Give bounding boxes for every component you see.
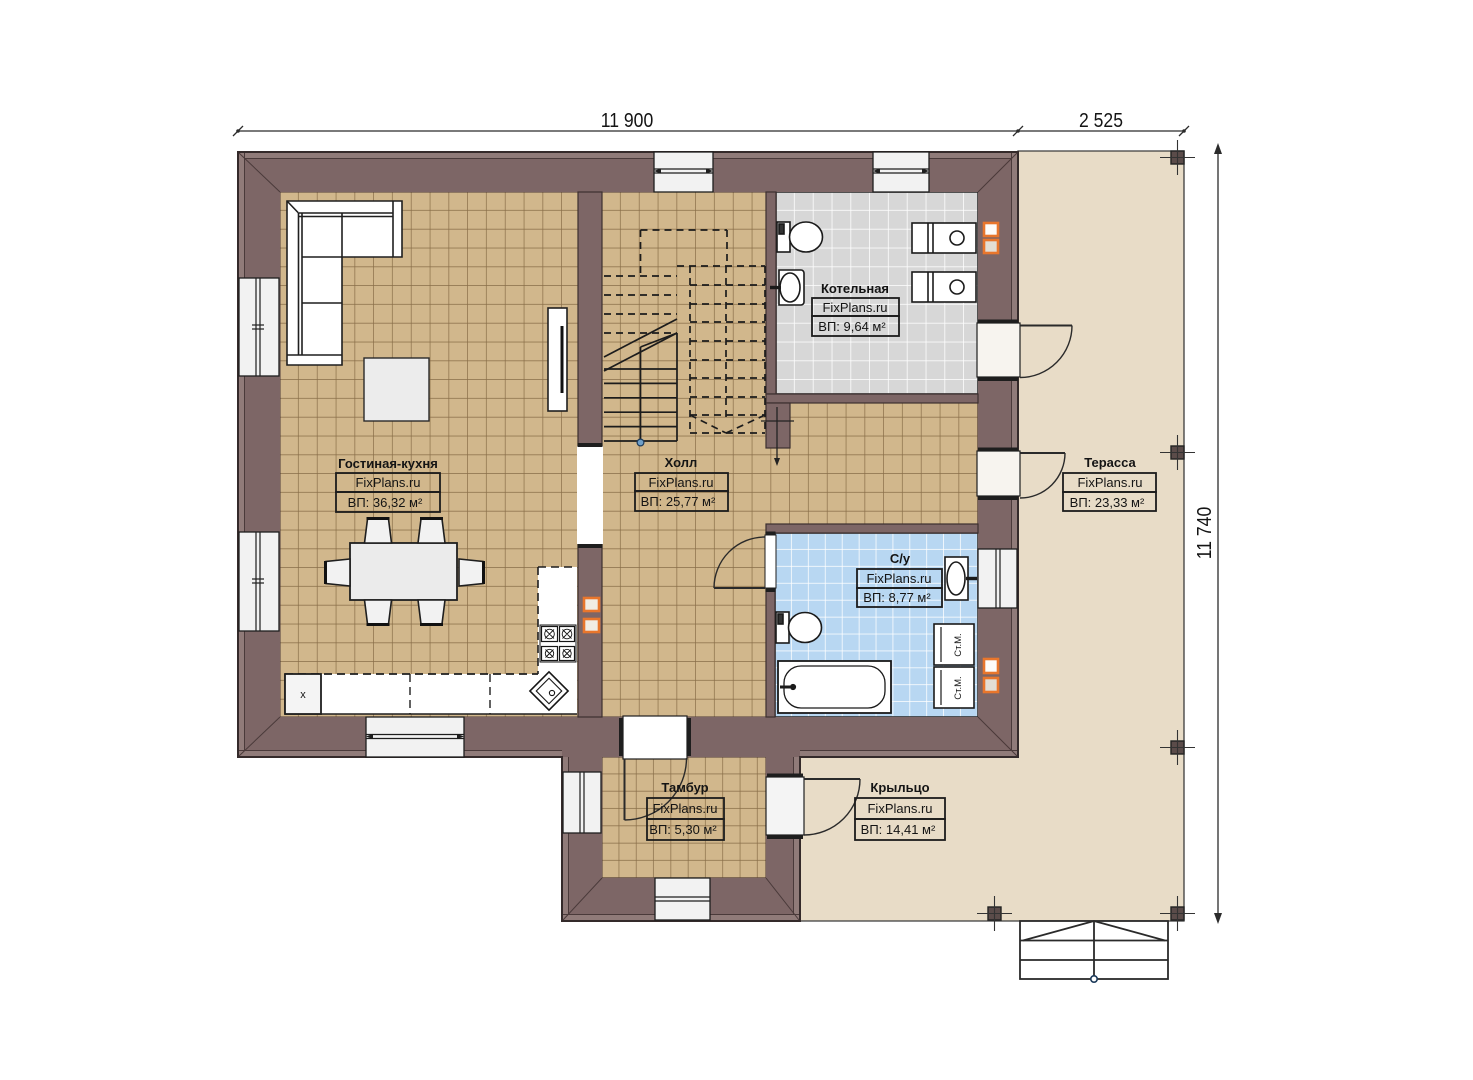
svg-text:Терасса: Терасса [1084, 455, 1136, 470]
svg-text:ВП: 23,33 м²: ВП: 23,33 м² [1070, 495, 1145, 510]
svg-text:Крыльцо: Крыльцо [870, 780, 929, 795]
svg-text:ВП: 36,32 м²: ВП: 36,32 м² [348, 495, 423, 510]
svg-text:Ст.М.: Ст.М. [953, 633, 964, 656]
svg-text:ВП: 8,77 м²: ВП: 8,77 м² [863, 590, 931, 605]
svg-text:ВП: 5,30 м²: ВП: 5,30 м² [649, 822, 717, 837]
svg-text:Тамбур: Тамбур [661, 780, 708, 795]
svg-text:FixPlans.ru: FixPlans.ru [866, 571, 931, 586]
svg-text:FixPlans.ru: FixPlans.ru [1077, 475, 1142, 490]
svg-text:FixPlans.ru: FixPlans.ru [867, 801, 932, 816]
svg-text:FixPlans.ru: FixPlans.ru [652, 801, 717, 816]
svg-text:ВП: 9,64 м²: ВП: 9,64 м² [818, 319, 886, 334]
svg-text:FixPlans.ru: FixPlans.ru [355, 475, 420, 490]
svg-text:Гостиная-кухня: Гостиная-кухня [338, 456, 438, 471]
svg-text:ВП: 14,41 м²: ВП: 14,41 м² [861, 822, 936, 837]
svg-text:2 525: 2 525 [1079, 109, 1123, 131]
svg-text:11 900: 11 900 [601, 109, 654, 131]
svg-text:Ст.М.: Ст.М. [953, 676, 964, 699]
svg-text:FixPlans.ru: FixPlans.ru [822, 300, 887, 315]
svg-text:x: x [300, 689, 306, 701]
svg-text:Котельная: Котельная [821, 281, 889, 296]
svg-text:ВП: 25,77 м²: ВП: 25,77 м² [641, 494, 716, 509]
svg-text:Холл: Холл [665, 455, 698, 470]
svg-text:FixPlans.ru: FixPlans.ru [648, 475, 713, 490]
svg-text:11 740: 11 740 [1193, 507, 1215, 560]
svg-text:С/у: С/у [890, 551, 911, 566]
